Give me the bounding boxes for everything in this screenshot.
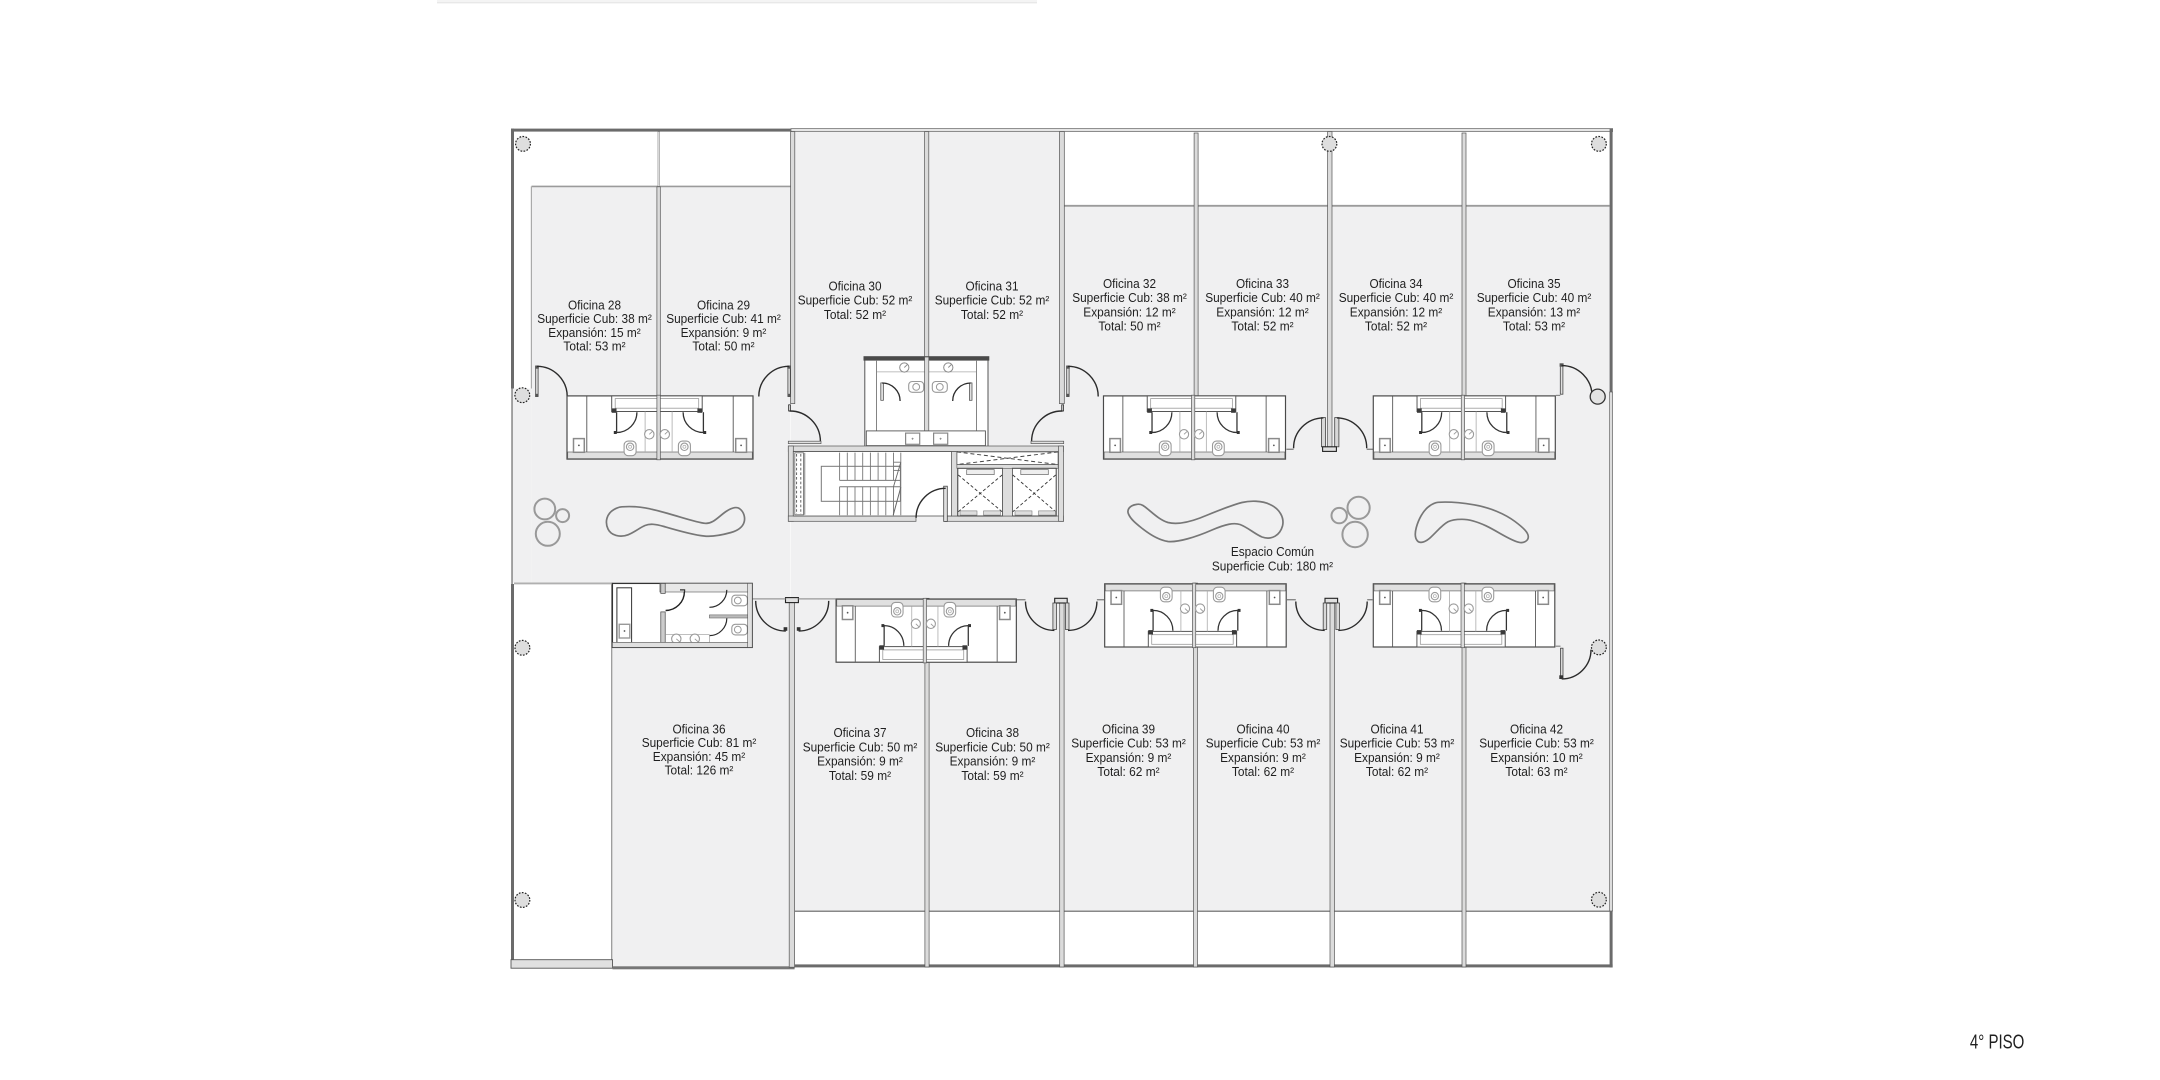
svg-text:Superficie Cub: 53 m²: Superficie Cub: 53 m² bbox=[1071, 736, 1186, 751]
svg-text:Expansión: 9 m²: Expansión: 9 m² bbox=[1354, 750, 1440, 765]
svg-text:Superficie Cub: 40 m²: Superficie Cub: 40 m² bbox=[1339, 290, 1454, 305]
svg-text:Total: 50 m²: Total: 50 m² bbox=[692, 338, 755, 353]
svg-text:Total: 59 m²: Total: 59 m² bbox=[961, 768, 1024, 783]
svg-text:4° PISO: 4° PISO bbox=[1970, 1031, 2025, 1054]
svg-text:Oficina 41: Oficina 41 bbox=[1370, 721, 1423, 736]
svg-text:Oficina 39: Oficina 39 bbox=[1102, 721, 1155, 736]
svg-text:Total: 52 m²: Total: 52 m² bbox=[1365, 319, 1428, 334]
svg-text:Expansión: 10 m²: Expansión: 10 m² bbox=[1490, 750, 1583, 765]
svg-text:Expansión: 9 m²: Expansión: 9 m² bbox=[950, 754, 1036, 769]
svg-text:Total: 62 m²: Total: 62 m² bbox=[1366, 764, 1429, 779]
svg-text:Oficina 34: Oficina 34 bbox=[1369, 276, 1422, 291]
svg-text:Oficina 31: Oficina 31 bbox=[965, 278, 1018, 293]
svg-text:Superficie Cub: 38 m²: Superficie Cub: 38 m² bbox=[1072, 290, 1187, 305]
svg-text:Superficie Cub: 50 m²: Superficie Cub: 50 m² bbox=[935, 739, 1050, 754]
svg-text:Total: 62 m²: Total: 62 m² bbox=[1232, 764, 1295, 779]
svg-text:Total: 50 m²: Total: 50 m² bbox=[1098, 319, 1161, 334]
svg-text:Total: 52 m²: Total: 52 m² bbox=[1231, 319, 1294, 334]
svg-text:Oficina 40: Oficina 40 bbox=[1236, 721, 1289, 736]
svg-text:Total: 53 m²: Total: 53 m² bbox=[1503, 319, 1566, 334]
svg-text:Oficina 42: Oficina 42 bbox=[1510, 721, 1563, 736]
svg-text:Expansión: 9 m²: Expansión: 9 m² bbox=[1086, 750, 1172, 765]
svg-text:Total: 63 m²: Total: 63 m² bbox=[1505, 764, 1568, 779]
svg-text:Superficie Cub: 52 m²: Superficie Cub: 52 m² bbox=[935, 293, 1050, 308]
svg-text:Superficie Cub: 52 m²: Superficie Cub: 52 m² bbox=[798, 293, 913, 308]
svg-text:Oficina 30: Oficina 30 bbox=[828, 278, 881, 293]
svg-text:Superficie Cub: 40 m²: Superficie Cub: 40 m² bbox=[1205, 290, 1320, 305]
svg-text:Expansión: 12 m²: Expansión: 12 m² bbox=[1083, 304, 1176, 319]
svg-text:Espacio Común: Espacio Común bbox=[1231, 544, 1314, 559]
svg-text:Total: 62 m²: Total: 62 m² bbox=[1097, 764, 1160, 779]
svg-text:Superficie Cub: 50 m²: Superficie Cub: 50 m² bbox=[803, 739, 918, 754]
svg-text:Oficina 37: Oficina 37 bbox=[833, 725, 886, 740]
svg-text:Superficie Cub: 53 m²: Superficie Cub: 53 m² bbox=[1206, 736, 1321, 751]
svg-text:Oficina 35: Oficina 35 bbox=[1507, 276, 1560, 291]
svg-text:Total: 52 m²: Total: 52 m² bbox=[961, 307, 1024, 322]
svg-text:Superficie Cub: 180 m²: Superficie Cub: 180 m² bbox=[1212, 559, 1334, 574]
svg-text:Oficina 38: Oficina 38 bbox=[966, 725, 1019, 740]
svg-text:Expansión: 12 m²: Expansión: 12 m² bbox=[1350, 304, 1443, 319]
svg-text:Superficie Cub: 40 m²: Superficie Cub: 40 m² bbox=[1477, 290, 1592, 305]
svg-text:Total: 59 m²: Total: 59 m² bbox=[829, 768, 892, 783]
svg-text:Total: 126 m²: Total: 126 m² bbox=[665, 763, 734, 778]
svg-text:Superficie Cub: 53 m²: Superficie Cub: 53 m² bbox=[1479, 736, 1594, 751]
svg-text:Expansión: 13 m²: Expansión: 13 m² bbox=[1488, 304, 1581, 319]
svg-text:Oficina 32: Oficina 32 bbox=[1103, 276, 1156, 291]
svg-text:Superficie Cub: 53 m²: Superficie Cub: 53 m² bbox=[1340, 736, 1455, 751]
svg-text:Oficina 33: Oficina 33 bbox=[1236, 276, 1289, 291]
svg-text:Expansión: 9 m²: Expansión: 9 m² bbox=[817, 754, 903, 769]
svg-text:Expansión: 9 m²: Expansión: 9 m² bbox=[1220, 750, 1306, 765]
svg-text:Expansión: 12 m²: Expansión: 12 m² bbox=[1216, 304, 1309, 319]
svg-text:Total: 53 m²: Total: 53 m² bbox=[563, 338, 626, 353]
svg-text:Total: 52 m²: Total: 52 m² bbox=[824, 307, 887, 322]
